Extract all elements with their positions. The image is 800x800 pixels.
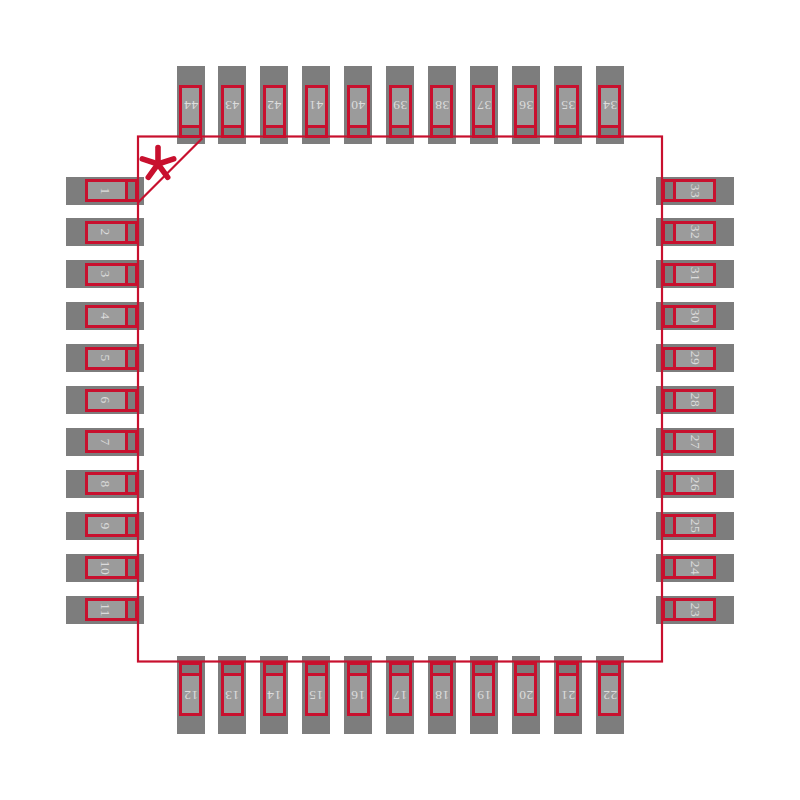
lead-foot-divider-line (125, 347, 128, 370)
pin-pad-32: 32 (656, 218, 734, 246)
pin-number: 26 (687, 467, 703, 501)
lead-foot-divider-line (389, 125, 412, 128)
lead-foot-divider-line (673, 221, 676, 244)
lead-foot-divider-line (389, 673, 412, 676)
pin-pad-25: 25 (656, 512, 734, 540)
lead-foot-divider-line (673, 598, 676, 621)
lead-foot-divider-line (263, 125, 286, 128)
pin-pad-12: 12 (177, 656, 205, 734)
lead-foot-divider-line (125, 305, 128, 328)
pin-pad-29: 29 (656, 344, 734, 372)
lead-foot (128, 475, 136, 492)
pin-number: 33 (687, 174, 703, 208)
pin1-marker-icon (142, 148, 173, 178)
lead-foot-divider-line (179, 125, 202, 128)
pin-pad-10: 10 (66, 554, 144, 582)
pin-pad-15: 15 (302, 656, 330, 734)
lead-foot-divider-line (125, 263, 128, 286)
pin-pad-44: 44 (177, 66, 205, 144)
pin-pad-23: 23 (656, 596, 734, 624)
lead-foot-divider-line (598, 125, 621, 128)
lead-foot (665, 350, 673, 367)
pin-pad-5: 5 (66, 344, 144, 372)
lead-foot-divider-line (673, 472, 676, 495)
lead-foot (559, 665, 576, 673)
lead-foot (559, 128, 576, 136)
pin-pad-28: 28 (656, 386, 734, 414)
pin-pad-34: 34 (596, 66, 624, 144)
lead-foot (308, 128, 325, 136)
lead-foot-divider-line (125, 472, 128, 495)
lead-foot-divider-line (305, 673, 328, 676)
lead-foot (308, 665, 325, 673)
lead-foot-divider-line (673, 389, 676, 412)
pin-pad-37: 37 (470, 66, 498, 144)
lead-foot-divider-line (347, 125, 370, 128)
pin-number: 13 (215, 687, 249, 703)
lead-foot-divider-line (125, 514, 128, 537)
pin-pad-38: 38 (428, 66, 456, 144)
pin-pad-13: 13 (218, 656, 246, 734)
lead-foot-divider-line (430, 673, 453, 676)
pin-pad-30: 30 (656, 302, 734, 330)
lead-foot (128, 559, 136, 576)
pin-pad-16: 16 (344, 656, 372, 734)
pin-number: 38 (425, 97, 459, 113)
lead-foot (224, 128, 241, 136)
lead-foot-divider-line (556, 673, 579, 676)
lead-foot-divider-line (430, 125, 453, 128)
lead-foot (128, 517, 136, 534)
lead-foot (665, 266, 673, 283)
pin-pad-26: 26 (656, 470, 734, 498)
pin-number: 4 (97, 299, 113, 333)
lead-foot-divider-line (673, 347, 676, 370)
lead-foot (128, 350, 136, 367)
pin-number: 19 (467, 687, 501, 703)
pin-number: 21 (551, 687, 585, 703)
pin-pad-21: 21 (554, 656, 582, 734)
pin-pad-6: 6 (66, 386, 144, 414)
lead-foot (392, 665, 409, 673)
lead-foot (433, 128, 450, 136)
lead-foot (517, 665, 534, 673)
lead-foot-divider-line (673, 179, 676, 202)
pin-pad-31: 31 (656, 260, 734, 288)
lead-foot-divider-line (673, 305, 676, 328)
pin-number: 28 (687, 383, 703, 417)
lead-foot (266, 665, 283, 673)
lead-foot (517, 128, 534, 136)
pin-number: 29 (687, 341, 703, 375)
lead-foot (665, 392, 673, 409)
pin-pad-42: 42 (260, 66, 288, 144)
lead-foot-divider-line (221, 125, 244, 128)
lead-foot-divider-line (125, 221, 128, 244)
pin-number: 30 (687, 299, 703, 333)
lead-foot (392, 128, 409, 136)
lead-foot (350, 128, 367, 136)
lead-foot-divider-line (305, 125, 328, 128)
lead-foot-divider-line (673, 514, 676, 537)
pin-number: 27 (687, 425, 703, 459)
pin-number: 39 (383, 97, 417, 113)
pin-pad-39: 39 (386, 66, 414, 144)
lead-foot (665, 433, 673, 450)
pin-number: 6 (97, 383, 113, 417)
pin-pad-9: 9 (66, 512, 144, 540)
pin-pad-20: 20 (512, 656, 540, 734)
pin-number: 8 (97, 467, 113, 501)
lead-foot (601, 128, 618, 136)
lead-foot (475, 128, 492, 136)
pin-number: 14 (257, 687, 291, 703)
lead-foot (128, 433, 136, 450)
pin-number: 1 (97, 174, 113, 208)
lead-foot-divider-line (125, 556, 128, 579)
lead-foot-divider-line (514, 125, 537, 128)
pin-pad-41: 41 (302, 66, 330, 144)
lead-foot (182, 128, 199, 136)
pin-number: 32 (687, 215, 703, 249)
pin-number: 25 (687, 509, 703, 543)
lead-foot (224, 665, 241, 673)
lead-foot-divider-line (598, 673, 621, 676)
pin-number: 37 (467, 97, 501, 113)
pin-pad-33: 33 (656, 177, 734, 205)
lead-foot-divider-line (673, 263, 676, 286)
lead-foot-divider-line (125, 389, 128, 412)
lead-foot (665, 224, 673, 241)
pin-number: 5 (97, 341, 113, 375)
pin-number: 35 (551, 97, 585, 113)
lead-foot (665, 308, 673, 325)
pin-number: 42 (257, 97, 291, 113)
lead-foot (665, 182, 673, 199)
lead-foot-divider-line (125, 179, 128, 202)
pin-pad-24: 24 (656, 554, 734, 582)
pin-pad-27: 27 (656, 428, 734, 456)
pin-pad-1: 1 (66, 177, 144, 205)
lead-foot-divider-line (221, 673, 244, 676)
lead-foot-divider-line (472, 673, 495, 676)
pin-number: 22 (593, 687, 627, 703)
lead-foot (665, 601, 673, 618)
pin1-chamfer-line (138, 138, 202, 202)
lead-foot (601, 665, 618, 673)
pin-pad-3: 3 (66, 260, 144, 288)
lead-foot-divider-line (125, 598, 128, 621)
pin-pad-11: 11 (66, 596, 144, 624)
pin-number: 10 (97, 551, 113, 585)
pin-pad-22: 22 (596, 656, 624, 734)
lead-foot (128, 308, 136, 325)
pin-pad-19: 19 (470, 656, 498, 734)
pin-number: 36 (509, 97, 543, 113)
pin-number: 17 (383, 687, 417, 703)
pin-number: 9 (97, 509, 113, 543)
pin-pad-8: 8 (66, 470, 144, 498)
pin-number: 20 (509, 687, 543, 703)
pin-number: 2 (97, 215, 113, 249)
lead-foot (266, 128, 283, 136)
pin-pad-7: 7 (66, 428, 144, 456)
lead-foot-divider-line (179, 673, 202, 676)
lead-foot (128, 266, 136, 283)
pin-number: 12 (174, 687, 208, 703)
package-body-outline (138, 137, 662, 662)
pin-number: 16 (341, 687, 375, 703)
pin-number: 34 (593, 97, 627, 113)
footprint-diagram: 1234567891011333231302928272625242344434… (0, 0, 800, 800)
lead-foot (665, 475, 673, 492)
pin-pad-4: 4 (66, 302, 144, 330)
lead-foot (665, 559, 673, 576)
pin-number: 31 (687, 257, 703, 291)
lead-foot-divider-line (263, 673, 286, 676)
pin-pad-35: 35 (554, 66, 582, 144)
pin-pad-2: 2 (66, 218, 144, 246)
lead-foot (665, 517, 673, 534)
pin-pad-17: 17 (386, 656, 414, 734)
lead-foot-divider-line (556, 125, 579, 128)
pin-number: 15 (299, 687, 333, 703)
lead-foot (433, 665, 450, 673)
lead-foot (128, 392, 136, 409)
pin-pad-14: 14 (260, 656, 288, 734)
pin-number: 43 (215, 97, 249, 113)
pin-pad-40: 40 (344, 66, 372, 144)
lead-foot-divider-line (514, 673, 537, 676)
pin-number: 41 (299, 97, 333, 113)
pin-number: 24 (687, 551, 703, 585)
lead-foot (350, 665, 367, 673)
pin-number: 18 (425, 687, 459, 703)
lead-foot-divider-line (472, 125, 495, 128)
pin-number: 23 (687, 593, 703, 627)
pin-number: 3 (97, 257, 113, 291)
pin-number: 7 (97, 425, 113, 459)
lead-foot-divider-line (673, 556, 676, 579)
pin-number: 11 (97, 593, 113, 627)
lead-foot (128, 601, 136, 618)
lead-foot-divider-line (673, 430, 676, 453)
lead-foot (475, 665, 492, 673)
lead-foot (128, 182, 136, 199)
lead-foot-divider-line (125, 430, 128, 453)
pin-number: 40 (341, 97, 375, 113)
pin-number: 44 (174, 97, 208, 113)
lead-foot (182, 665, 199, 673)
pin-pad-18: 18 (428, 656, 456, 734)
pin-pad-43: 43 (218, 66, 246, 144)
lead-foot (128, 224, 136, 241)
lead-foot-divider-line (347, 673, 370, 676)
pin-pad-36: 36 (512, 66, 540, 144)
